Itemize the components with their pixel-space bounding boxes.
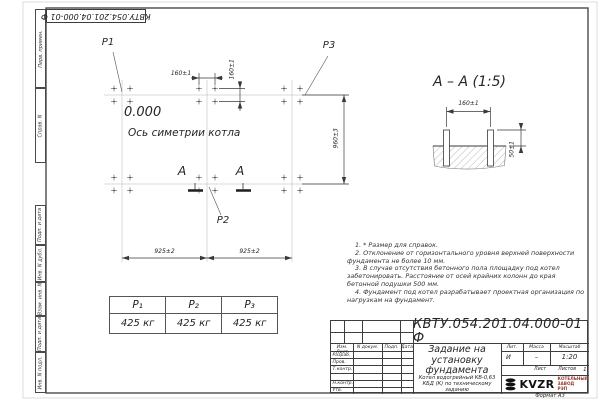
load-label-p1: P1 [97, 37, 119, 48]
product-name: Котел водогрейный КВ-0,63 КБД (К) по тех… [415, 376, 499, 393]
dim-160-horizontal: 160±1 [165, 71, 197, 78]
margin-cell-podp-data-2: Подп. и дата [35, 316, 46, 352]
margin-cell-sprav-n: Справ. N [35, 88, 46, 163]
loads-value-p2: 425 кг [165, 313, 222, 334]
margin-cell-inv-dubl: Инв. N дубл. [35, 245, 46, 282]
note-3: 3. В случае отсутствия бетонного пола пл… [347, 265, 587, 288]
dim-960: 960±3 [334, 122, 341, 154]
dim-925-left: 925±2 [148, 249, 181, 256]
section-title: А – А (1:5) [417, 75, 522, 90]
row-razrab: Разраб. [333, 353, 351, 358]
margin-cell-inv-podl: Инв. N подл. [35, 352, 46, 393]
margin-label: Инв. N дубл. [38, 247, 44, 280]
level-mark: 0.000 [124, 106, 161, 120]
anchor-stud [488, 130, 494, 166]
titleblock-designation: КВТУ.054.201.04.000-01 Ф [413, 321, 589, 343]
rotated-designation-stamp: КВТУ.054.201.04.000-01 Ф [46, 9, 146, 23]
load-label-p2: P2 [212, 215, 234, 226]
sheet-label: Лист [534, 367, 546, 372]
loads-value-p3: 425 кг [221, 313, 278, 334]
margin-label: Инв. N подл. [38, 356, 44, 389]
section-dim-50: 50±1 [510, 134, 517, 164]
dim-160-vertical: 160±1 [230, 53, 237, 85]
document-title: Задание на установку фундамента [413, 345, 501, 377]
logo-row: KVZR КОТЕЛЬНЫЙ ЗАВОД РЭП [501, 375, 589, 394]
sheets-count: 1 [583, 367, 587, 373]
col-podp: Подп. [382, 345, 401, 350]
loads-header-p2: P₂ [165, 296, 222, 314]
scale-header: Масштаб [550, 345, 589, 350]
lit-header: Лит. [501, 345, 523, 350]
col-n-dokum: N докум. [353, 345, 382, 350]
margin-label: Справ. N [38, 114, 44, 137]
rotated-designation-text: КВТУ.054.201.04.000-01 Ф [41, 12, 151, 21]
loads-header-p1: P₁ [109, 296, 166, 314]
scale-value: 1:20 [550, 354, 589, 362]
section-letter-left: А [174, 164, 190, 178]
note-4: 4. Фундамент под котел разрабатывает про… [347, 289, 587, 305]
symmetry-axis-label: Ось симетрии котла [128, 128, 240, 140]
load-label-p3: P3 [318, 40, 340, 51]
format-label: Формат А3 [520, 394, 580, 400]
margin-cell-podp-data-1: Подп. и дата [35, 205, 46, 245]
row-utv: Утв. [333, 388, 343, 393]
loads-header-p3: P₃ [221, 296, 278, 314]
mass-value: – [523, 354, 550, 361]
section-dim-160: 160±1 [452, 101, 485, 108]
col-data: Дата [401, 345, 413, 350]
section-letter-right: А [232, 164, 248, 178]
sheets-label: Листов [558, 367, 576, 372]
row-nkontr: Н.контр. [333, 381, 354, 386]
margin-cell-vzam-inv: Взам. инв. N [35, 282, 46, 316]
sheet-row: Лист Листов 1 [501, 365, 589, 375]
loads-table: P₁ P₂ P₃ 425 кг 425 кг 425 кг [110, 296, 278, 333]
row-tkontr: Т.контр. [333, 367, 353, 372]
lit-value: И [506, 354, 511, 361]
margin-label: Подп. и дата [38, 317, 44, 351]
anchor-stud [444, 130, 450, 166]
mass-header: Масса [523, 345, 550, 350]
loads-value-p1: 425 кг [109, 313, 166, 334]
title-block: КВТУ.054.201.04.000-01 Ф Изм. Лист N док… [330, 320, 588, 393]
row-prov: Пров. [333, 360, 346, 365]
notes-block: 1. * Размер для справок. 2. Отклонение о… [347, 242, 587, 304]
logo-text: KVZR [519, 378, 554, 391]
drawing-sheet: Перв. примен. Справ. N Подп. и дата Инв.… [0, 0, 600, 400]
logo-caption: КОТЕЛЬНЫЙ ЗАВОД РЭП [558, 377, 585, 391]
margin-label: Подп. и дата [38, 208, 44, 242]
dim-925-right: 925±2 [233, 249, 266, 256]
note-2: 2. Отклонение от горизонтального уровня … [347, 250, 587, 266]
margin-label: Взам. инв. N [38, 283, 44, 316]
kvzr-logo-icon [505, 378, 516, 391]
margin-label: Перв. примен. [38, 30, 44, 68]
